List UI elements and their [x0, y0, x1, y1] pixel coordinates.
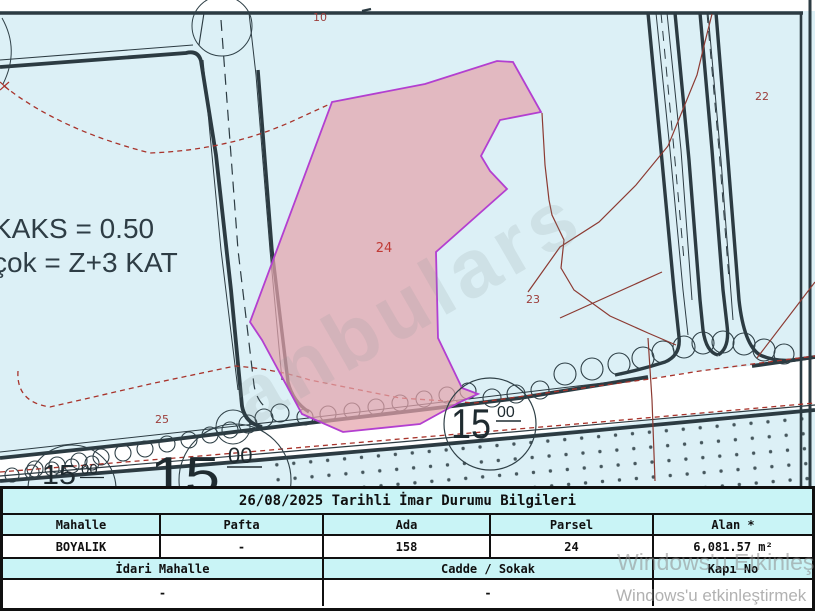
zoning-map: anbulars 10 22 23 25 24 15 00 15 00 15 0…	[0, 0, 815, 486]
header-idari-mahalle: İdari Mahalle	[3, 559, 322, 578]
value-cadde-sokak: -	[322, 580, 652, 606]
zoning-note-floors: çok = Z+3 KAT	[0, 247, 178, 278]
parcel-label-22: 22	[755, 90, 769, 103]
table-title: 26/08/2025 Tarihli İmar Durumu Bilgileri	[3, 489, 812, 515]
value-ada: 158	[322, 536, 489, 557]
windows-activation-watermark-line1: Windows'u Etkinleş	[617, 549, 814, 576]
top-margin	[0, 0, 815, 11]
value-idari-mahalle: -	[3, 580, 322, 606]
road-width-left-small-value: 15	[42, 459, 76, 486]
road-width-left-small-sup: 00	[81, 461, 98, 478]
road-width-left-big-value: 15	[150, 447, 220, 486]
parcel-label-24: 24	[376, 241, 393, 256]
header-cadde-sokak: Cadde / Sokak	[322, 559, 652, 578]
parcel-label-23: 23	[526, 293, 540, 306]
value-mahalle: BOYALIK	[3, 536, 159, 557]
road-label-10: 10	[313, 11, 327, 24]
road-width-right-value: 15	[451, 400, 491, 447]
windows-activation-watermark-line2: Windows'u etkinleştirmek	[616, 586, 806, 606]
zoning-status-screenshot: anbulars 10 22 23 25 24 15 00 15 00 15 0…	[0, 0, 815, 612]
value-pafta: -	[159, 536, 322, 557]
header-ada: Ada	[322, 515, 489, 534]
road-width-left-big-sup: 00	[228, 443, 252, 468]
parcel-label-25: 25	[155, 413, 169, 426]
zoning-map-canvas: anbulars 10 22 23 25 24 15 00 15 00 15 0…	[0, 0, 815, 486]
table-header-row-1: Mahalle Pafta Ada Parsel Alan *	[3, 515, 812, 536]
header-pafta: Pafta	[159, 515, 322, 534]
road-width-right-sup: 00	[497, 404, 515, 421]
header-parsel: Parsel	[489, 515, 652, 534]
zoning-note-kaks: KAKS = 0.50	[0, 213, 154, 244]
header-alan: Alan *	[652, 515, 812, 534]
header-mahalle: Mahalle	[3, 515, 159, 534]
